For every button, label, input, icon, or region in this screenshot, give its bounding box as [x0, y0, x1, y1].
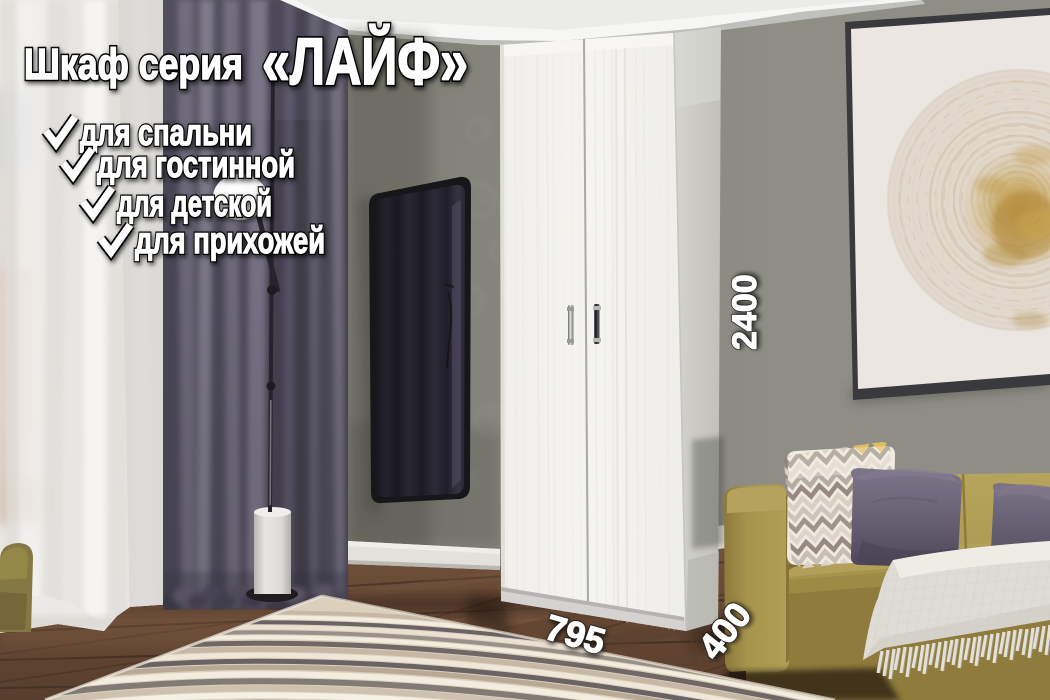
svg-text:«ЛАЙФ»: «ЛАЙФ» — [262, 23, 468, 98]
svg-text:для прихожей: для прихожей — [135, 220, 325, 261]
svg-text:для гостинной: для гостинной — [97, 144, 295, 185]
svg-text:для детской: для детской — [117, 183, 272, 224]
svg-text:Шкаф серия: Шкаф серия — [24, 40, 243, 89]
svg-text:2400: 2400 — [726, 274, 764, 350]
